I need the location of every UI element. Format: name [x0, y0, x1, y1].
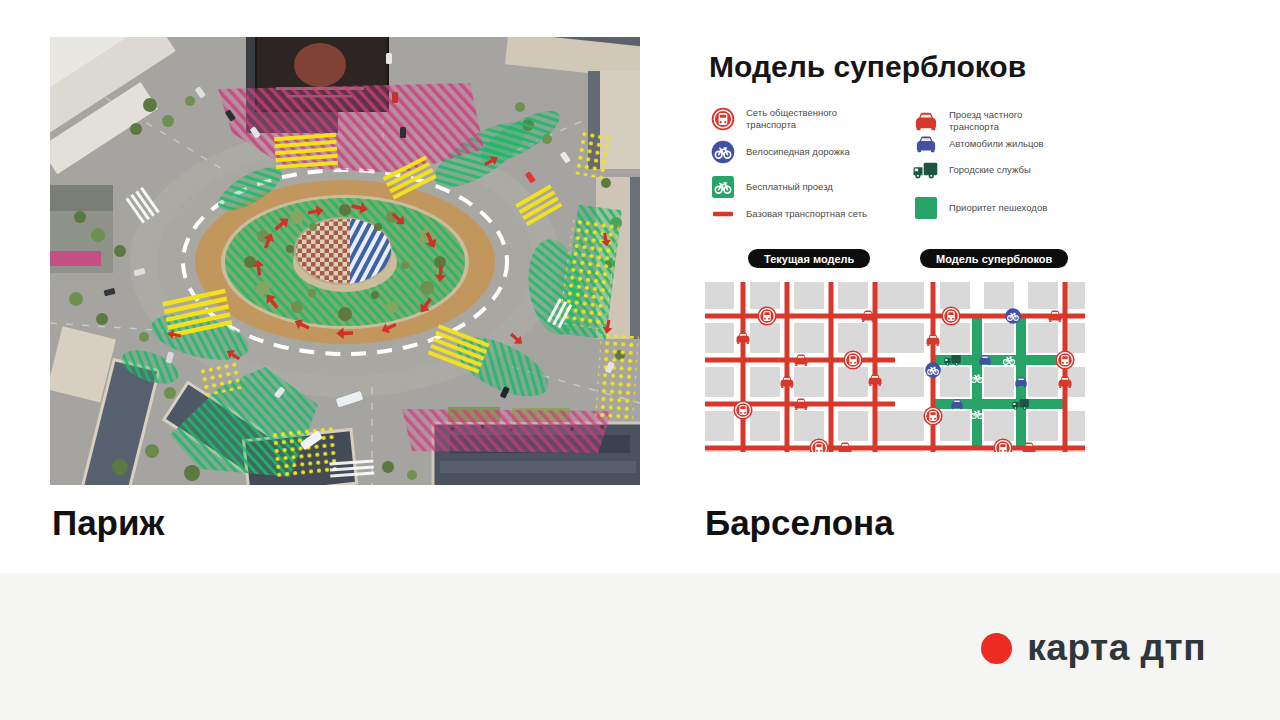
car-blue-icon [913, 131, 939, 157]
paris-aerial-photo [50, 37, 640, 485]
bus-icon [941, 306, 960, 325]
legend-label: Городские службы [949, 164, 1031, 176]
current-model-diagram-svg [705, 282, 895, 452]
legend-item-free-passage: Бесплатный проезд [710, 174, 833, 200]
car-red-icon [781, 377, 794, 388]
logo-text: карта дтп [1027, 627, 1206, 669]
bus-icon [733, 400, 752, 419]
legend-label: Сеть общественного транспорта [746, 107, 871, 131]
legend-label: Приоритет пешеходов [949, 202, 1047, 214]
legend-item-bike-path: Велосипедная дорожка [710, 139, 850, 165]
current-model-tag: Текущая модель [748, 249, 870, 268]
barcelona-label: Барселона [705, 503, 894, 543]
car-red-icon [737, 333, 750, 344]
legend-label: Автомобили жильцов [949, 138, 1044, 150]
brand-logo: карта дтп [981, 627, 1206, 669]
bike-circle-icon [710, 139, 736, 165]
superblocks-model-diagram-svg [895, 282, 1085, 452]
bike-circle-icon [925, 362, 941, 378]
red-line-icon [710, 201, 736, 227]
legend-label: Проезд частного транспорта [949, 109, 1074, 133]
car-red-icon [927, 335, 940, 346]
bike-square-icon [710, 174, 736, 200]
bus-icon [923, 406, 942, 425]
car-red-icon [1049, 311, 1062, 322]
legend-item-base-network: Базовая транспортная сеть [710, 201, 867, 227]
bus-icon [757, 306, 776, 325]
bike-circle-icon [1005, 308, 1021, 324]
logo-red-dot-icon [981, 633, 1012, 664]
superblocks-model-tag: Модель суперблоков [920, 249, 1068, 268]
bus-circle-icon [710, 106, 736, 132]
paris-label: Париж [52, 503, 164, 543]
superblocks-title: Модель суперблоков [709, 50, 1026, 84]
truck-icon [913, 157, 939, 183]
legend-item-city-services: Городские службы [913, 157, 1031, 183]
paris-aerial-photo-svg [50, 37, 640, 485]
slide: Модель суперблоков Сеть общественного тр… [0, 0, 1280, 720]
legend-label: Бесплатный проезд [746, 181, 833, 193]
legend-item-pedestrian-priority: Приоритет пешеходов [913, 195, 1047, 221]
car-red-icon [795, 355, 808, 366]
car-red-icon [839, 443, 852, 452]
green-square-icon [913, 195, 939, 221]
legend-item-public-transport: Сеть общественного транспорта [710, 106, 871, 132]
legend-item-resident-cars: Автомобили жильцов [913, 131, 1044, 157]
bus-icon [843, 350, 862, 369]
superblocks-model-diagram [895, 282, 1085, 452]
current-model-diagram [705, 282, 895, 452]
legend-label: Базовая транспортная сеть [746, 208, 867, 220]
legend-label: Велосипедная дорожка [746, 146, 850, 158]
car-red-icon [795, 399, 808, 410]
bus-icon [1055, 350, 1074, 369]
